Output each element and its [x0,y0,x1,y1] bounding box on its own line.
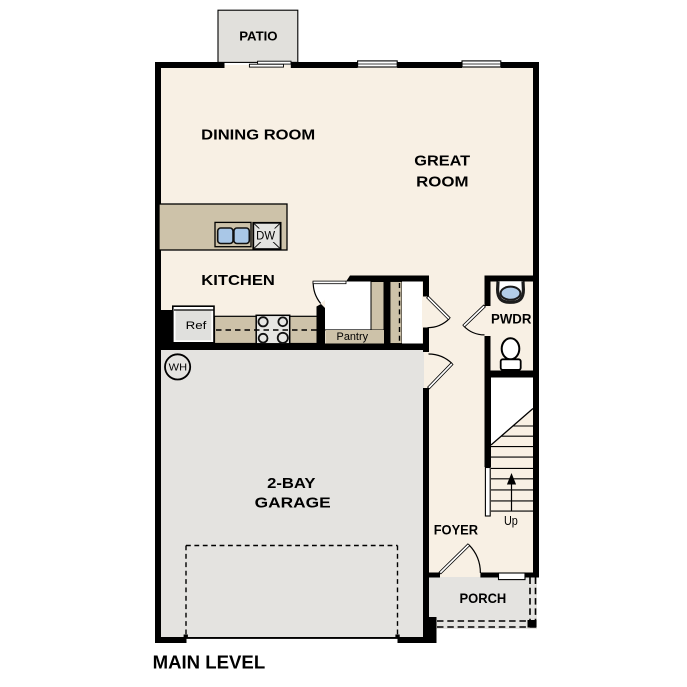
svg-text:FOYER: FOYER [434,523,478,539]
svg-text:PORCH: PORCH [460,590,507,606]
svg-text:Ref: Ref [186,320,208,332]
svg-text:2-BAY: 2-BAY [267,476,316,492]
svg-text:Pantry: Pantry [337,331,369,343]
svg-text:KITCHEN: KITCHEN [201,273,275,289]
svg-text:WH: WH [169,362,187,374]
svg-text:DINING ROOM: DINING ROOM [201,127,315,143]
svg-text:GARAGE: GARAGE [255,495,331,511]
svg-text:MAIN LEVEL: MAIN LEVEL [153,652,266,673]
svg-text:PWDR: PWDR [491,312,531,328]
svg-text:Up: Up [504,513,518,528]
svg-text:DW: DW [256,228,275,242]
svg-text:PATIO: PATIO [239,28,277,43]
svg-text:ROOM: ROOM [416,174,468,190]
svg-text:GREAT: GREAT [414,154,470,170]
